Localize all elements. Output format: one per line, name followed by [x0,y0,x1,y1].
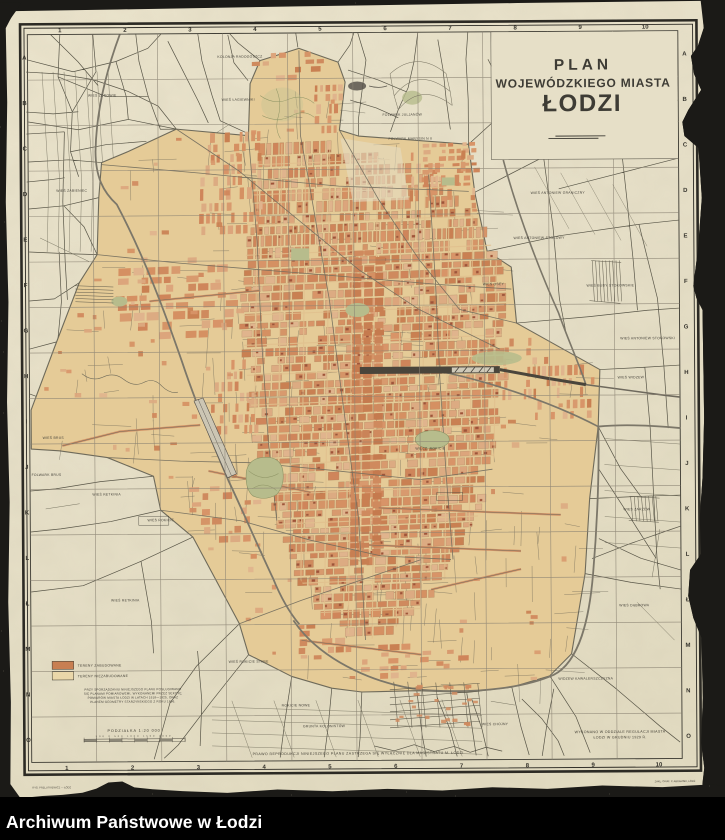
svg-text:WIEŚ BRUS: WIEŚ BRUS [43,435,65,440]
svg-text:N: N [686,688,690,694]
svg-text:A: A [682,52,687,58]
svg-text:WIEŚ ŁAGIEWNIKI: WIEŚ ŁAGIEWNIKI [222,97,255,102]
svg-text:WIEŚ CHOJNY: WIEŚ CHOJNY [482,721,509,726]
svg-text:Ł: Ł [26,601,30,607]
svg-text:WIEŚ ZARZEW: WIEŚ ZARZEW [623,506,650,511]
svg-text:B: B [683,97,688,103]
svg-text:C: C [683,143,688,149]
svg-text:WYKONANO W ODDZIALE REGULACJI: WYKONANO W ODDZIALE REGULACJI MIASTA [575,730,666,735]
svg-text:H: H [24,374,28,380]
svg-text:K: K [25,510,30,516]
svg-text:J: J [25,465,28,471]
svg-text:O: O [686,734,691,740]
svg-text:KOLONJA RADOGOSZCZ: KOLONJA RADOGOSZCZ [217,55,262,59]
svg-text:L: L [686,552,690,558]
svg-text:L: L [25,556,29,562]
svg-text:WIEŚ ANTONIEW STOKOWY: WIEŚ ANTONIEW STOKOWY [513,235,565,240]
svg-text:WIEŚ ANTONIEW GRANICZNY: WIEŚ ANTONIEW GRANICZNY [531,190,586,195]
svg-text:WIEŚ ROKICIE: WIEŚ ROKICIE [147,517,174,522]
svg-text:F: F [24,283,28,289]
svg-text:PODZIAŁKA 1:20 000: PODZIAŁKA 1:20 000 [107,729,160,733]
svg-text:O: O [26,738,31,744]
svg-text:GRUNTA KOLONISTÓW: GRUNTA KOLONISTÓW [303,723,346,728]
svg-text:WIEŚ RETKINIA: WIEŚ RETKINIA [111,597,140,602]
svg-text:K: K [685,506,690,512]
svg-text:PLAN: PLAN [554,56,612,73]
svg-text:10: 10 [656,762,663,768]
svg-text:WIEŚ WIDZEW: WIEŚ WIDZEW [618,374,645,379]
svg-text:D: D [23,192,28,198]
svg-text:WOJEWÓDZKIEGO MIASTA: WOJEWÓDZKIEGO MIASTA [495,75,670,91]
svg-text:H: H [684,370,688,376]
svg-text:WIEŚ ROKICIE STARE: WIEŚ ROKICIE STARE [229,659,270,664]
svg-text:C: C [23,147,28,153]
svg-text:G: G [684,325,689,331]
svg-text:E: E [684,234,688,240]
svg-text:D: D [683,188,688,194]
svg-text:J: J [685,461,688,467]
svg-text:ŁODZI W GRUDNIU 1929 R.: ŁODZI W GRUDNIU 1929 R. [593,735,646,739]
svg-text:TERENY ZABUDOWANE: TERENY ZABUDOWANE [78,663,122,667]
svg-text:M: M [686,643,691,649]
svg-text:M: M [25,647,30,653]
svg-text:N: N [26,692,30,698]
svg-text:WIEŚ DĄBROWA: WIEŚ DĄBROWA [619,602,650,607]
svg-text:Archiwum Państwowe w Łodzi: Archiwum Państwowe w Łodzi [6,812,262,832]
svg-text:WIEŚ OSEY: WIEŚ OSEY [483,281,505,286]
svg-text:500 0 500 1000 1500 2000: 500 0 500 1000 1500 2000 [96,735,173,738]
svg-text:10: 10 [642,25,649,31]
svg-text:WIEŚ ZABIENIEC: WIEŚ ZABIENIEC [56,188,87,193]
svg-text:FOLWARK MARYSIN N II: FOLWARK MARYSIN N II [388,137,432,141]
svg-text:B: B [22,101,27,107]
svg-text:A: A [22,56,27,62]
svg-text:ROKICIE NOWE: ROKICIE NOWE [282,703,311,707]
svg-text:G: G [24,329,29,335]
svg-text:WIEŚ ANTONIEW STOKOWSKI: WIEŚ ANTONIEW STOKOWSKI [620,335,675,340]
svg-text:TERENY NIEZABUDOWANE: TERENY NIEZABUDOWANE [78,674,129,678]
svg-text:FOLWARK JULJANÓW: FOLWARK JULJANÓW [382,112,422,117]
svg-text:WIEŚ ZDROWIE: WIEŚ ZDROWIE [88,92,117,97]
svg-text:WIEŚ RETKINIA: WIEŚ RETKINIA [92,491,121,496]
svg-text:E: E [23,238,27,244]
svg-text:WILCZ. ROKICIE: WILCZ. ROKICIE [415,446,445,450]
svg-text:WIEŚ BUDY STOKOWSKIE: WIEŚ BUDY STOKOWSKIE [586,282,634,287]
svg-text:FOLWARK BRUS: FOLWARK BRUS [32,473,62,477]
svg-text:WIDZEW KAWALERSZCZYZNA: WIDZEW KAWALERSZCZYZNA [558,676,613,680]
svg-text:F: F [684,279,688,285]
svg-text:ŁODZI: ŁODZI [542,90,622,117]
svg-text:PLANEM GEOMETRY STARZYŃSKIEGO: PLANEM GEOMETRY STARZYŃSKIEGO Z ROKU 189… [90,699,175,704]
